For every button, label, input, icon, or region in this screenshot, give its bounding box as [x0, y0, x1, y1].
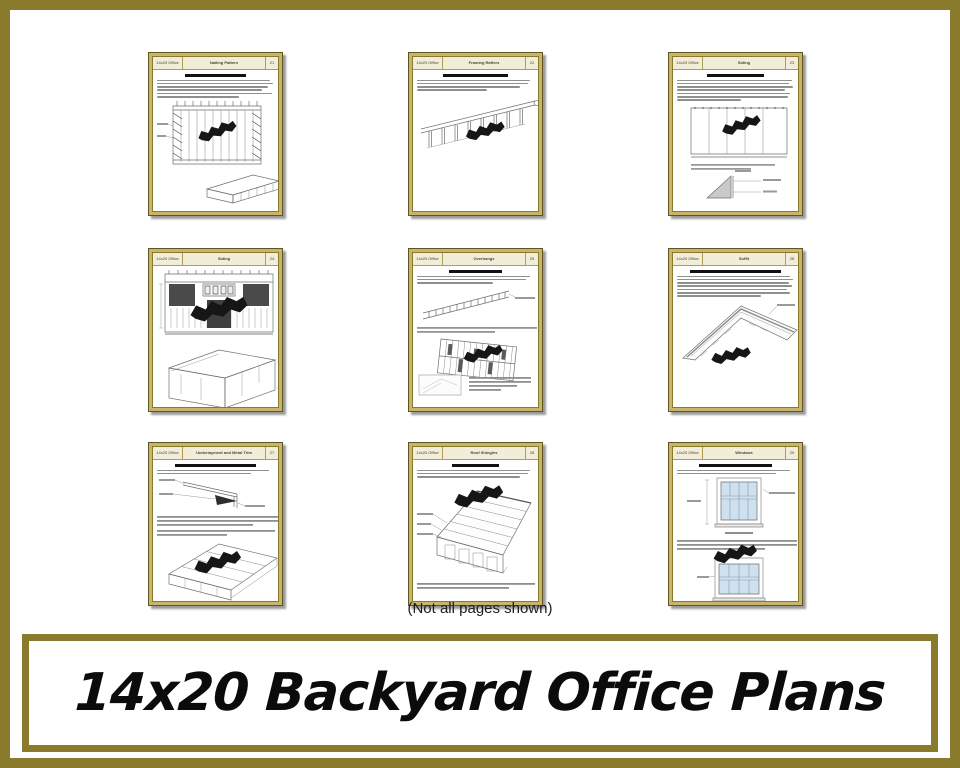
- page-header: 14x20 Office Framing Rafters 22: [413, 57, 538, 70]
- brand-label: 14x20 Office: [673, 447, 703, 459]
- plan-page-thumbnail-1: 14x20 Office Nailing Pattern 21: [148, 52, 283, 216]
- page-body: [413, 266, 538, 407]
- brand-label: 14x20 Office: [673, 253, 703, 265]
- page-number: 25: [525, 253, 538, 265]
- plan-sheet: 14x20 Office Windows 29: [672, 446, 799, 602]
- not-all-pages-caption: (Not all pages shown): [10, 600, 950, 617]
- page-body: [153, 460, 278, 601]
- plan-page-thumbnail-9: 14x20 Office Windows 29: [668, 442, 803, 606]
- watermark-scribble: [196, 119, 238, 145]
- page-header: 14x20 Office Soffit 26: [673, 253, 798, 266]
- window-install-drawing: [677, 476, 798, 601]
- section-heading-bar: [707, 74, 763, 77]
- rafter-framing-drawing: [417, 93, 538, 165]
- brand-label: 14x20 Office: [413, 253, 443, 265]
- plan-sheet: 14x20 Office Underlayment and Metal Trim…: [152, 446, 279, 602]
- plan-page-thumbnail-8: 14x20 Office Roof Shingles 28: [408, 442, 543, 606]
- section-heading-bar: [690, 270, 781, 273]
- page-body: [413, 70, 538, 211]
- section-heading-bar: [185, 74, 246, 77]
- page-number: 24: [265, 253, 278, 265]
- page-title: Overhangs: [443, 253, 525, 265]
- front-elevation-and-isometric-drawing: [157, 270, 278, 407]
- page-title: Underlayment and Metal Trim: [183, 447, 265, 459]
- page-title: Nailing Pattern: [183, 57, 265, 69]
- brand-label: 14x20 Office: [153, 57, 183, 69]
- section-heading-bar: [699, 464, 772, 467]
- page-header: 14x20 Office Siding 24: [153, 253, 278, 266]
- soffit-corner-drawing: [677, 298, 798, 382]
- page-number: 28: [525, 447, 538, 459]
- plan-sheet: 14x20 Office Nailing Pattern 21: [152, 56, 279, 212]
- page-title: Windows: [703, 447, 785, 459]
- plan-page-thumbnail-2: 14x20 Office Framing Rafters 22: [408, 52, 543, 216]
- page-number: 23: [785, 57, 798, 69]
- page-title: Soffit: [703, 253, 785, 265]
- siding-panel-drawing: [677, 102, 798, 200]
- page-number: 29: [785, 447, 798, 459]
- section-heading-bar: [452, 464, 499, 467]
- page-body: [153, 70, 278, 211]
- plan-page-thumbnail-6: 14x20 Office Soffit 26: [668, 248, 803, 412]
- plan-sheet: 14x20 Office Siding 24: [152, 252, 279, 408]
- page-body: [413, 460, 538, 601]
- plan-sheet: 14x20 Office Soffit 26: [672, 252, 799, 408]
- page-number: 21: [265, 57, 278, 69]
- brand-label: 14x20 Office: [413, 447, 443, 459]
- underlayment-roof-drawing: [157, 476, 278, 601]
- section-heading-bar: [443, 74, 507, 77]
- watermark-scribble: [192, 548, 243, 576]
- page-body: [673, 70, 798, 211]
- page-body: [673, 460, 798, 601]
- roof-framing-plan-drawing: [157, 99, 278, 207]
- product-image-frame: 14x20 Office Nailing Pattern 21: [0, 0, 960, 768]
- title-banner: 14x20 Backyard Office Plans: [22, 634, 938, 752]
- page-title: Siding: [703, 57, 785, 69]
- plan-sheet: 14x20 Office Framing Rafters 22: [412, 56, 539, 212]
- brand-label: 14x20 Office: [673, 57, 703, 69]
- plan-sheet: 14x20 Office Siding 23: [672, 56, 799, 212]
- page-header: 14x20 Office Overhangs 25: [413, 253, 538, 266]
- plan-page-thumbnail-5: 14x20 Office Overhangs 25: [408, 248, 543, 412]
- plan-sheet: 14x20 Office Roof Shingles 28: [412, 446, 539, 602]
- brand-label: 14x20 Office: [153, 447, 183, 459]
- page-body: [153, 266, 278, 407]
- section-heading-bar: [175, 464, 257, 467]
- page-title: Roof Shingles: [443, 447, 525, 459]
- brand-label: 14x20 Office: [413, 57, 443, 69]
- watermark-scribble: [462, 343, 504, 365]
- page-number: 22: [525, 57, 538, 69]
- watermark-scribble: [710, 345, 752, 366]
- plan-page-thumbnail-3: 14x20 Office Siding 23: [668, 52, 803, 216]
- page-title: Framing Rafters: [443, 57, 525, 69]
- page-header: 14x20 Office Siding 23: [673, 57, 798, 70]
- plan-sheet: 14x20 Office Overhangs 25: [412, 252, 539, 408]
- page-body: [673, 266, 798, 407]
- overhang-framing-drawing: [417, 285, 538, 397]
- page-header: 14x20 Office Windows 29: [673, 447, 798, 460]
- product-title: 14x20 Backyard Office Plans: [73, 663, 886, 723]
- page-header: 14x20 Office Underlayment and Metal Trim…: [153, 447, 278, 460]
- plan-page-thumbnail-7: 14x20 Office Underlayment and Metal Trim…: [148, 442, 283, 606]
- page-header: 14x20 Office Roof Shingles 28: [413, 447, 538, 460]
- page-number: 27: [265, 447, 278, 459]
- shingle-roof-drawing: [417, 479, 538, 593]
- page-header: 14x20 Office Nailing Pattern 21: [153, 57, 278, 70]
- page-title: Siding: [183, 253, 265, 265]
- plan-page-thumbnail-4: 14x20 Office Siding 24: [148, 248, 283, 412]
- brand-label: 14x20 Office: [153, 253, 183, 265]
- page-number: 26: [785, 253, 798, 265]
- section-heading-bar: [449, 270, 502, 273]
- watermark-scribble: [720, 113, 762, 137]
